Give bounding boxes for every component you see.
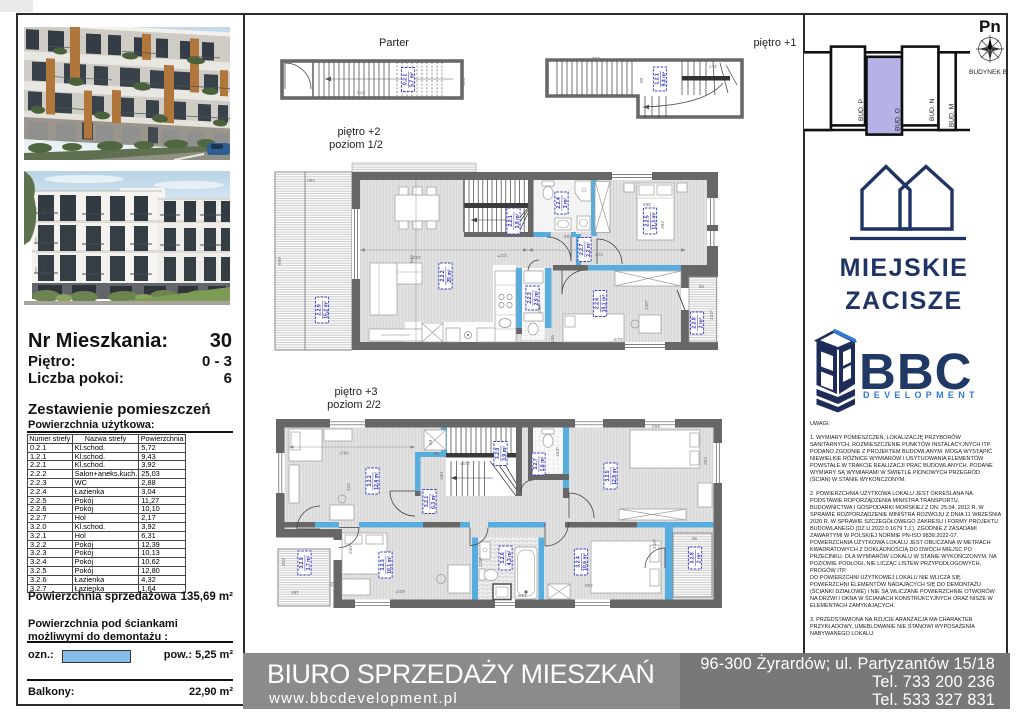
svg-text:6,3 m²: 6,3 m² xyxy=(431,494,437,509)
svg-text:228⁵: 228⁵ xyxy=(478,557,484,567)
svg-text:10,6 m²: 10,6 m² xyxy=(583,553,589,571)
svg-text:2.2.4: 2.2.4 xyxy=(556,197,562,208)
svg-text:2.2.7: 2.2.7 xyxy=(579,244,585,255)
svg-text:3 m²: 3 m² xyxy=(563,197,569,208)
svg-text:90: 90 xyxy=(698,283,704,289)
svg-text:3,9 m²: 3,9 m² xyxy=(502,446,508,461)
svg-text:129: 129 xyxy=(529,465,535,473)
svg-text:414⁵: 414⁵ xyxy=(613,336,623,342)
svg-text:10,1 m²: 10,1 m² xyxy=(387,556,393,574)
svg-text:piętro +1: piętro +1 xyxy=(753,37,796,49)
svg-text:2.2.2: 2.2.2 xyxy=(440,270,446,281)
svg-text:3.2.6: 3.2.6 xyxy=(500,552,506,563)
svg-text:2 m²: 2 m² xyxy=(699,317,705,328)
svg-text:BUD. M: BUD. M xyxy=(949,104,956,127)
svg-text:2,2 m²: 2,2 m² xyxy=(586,242,592,257)
svg-text:570: 570 xyxy=(357,89,365,95)
svg-text:3.2.2: 3.2.2 xyxy=(367,475,373,486)
svg-text:4,3 m²: 4,3 m² xyxy=(507,550,513,565)
svg-text:BUD. N: BUD. N xyxy=(929,98,936,121)
svg-text:250: 250 xyxy=(307,177,315,183)
svg-text:poziom 2/2: poziom 2/2 xyxy=(327,399,381,411)
svg-text:1,6 m²: 1,6 m² xyxy=(540,456,546,471)
svg-text:252: 252 xyxy=(281,558,287,566)
svg-text:2.2.9: 2.2.9 xyxy=(317,304,323,315)
svg-text:3,7 m²: 3,7 m² xyxy=(306,555,312,570)
svg-text:9,4 m²: 9,4 m² xyxy=(662,71,668,86)
svg-text:2.2.1: 2.2.1 xyxy=(508,215,514,226)
svg-text:2 m²: 2 m² xyxy=(697,552,703,563)
svg-text:12,8 m²: 12,8 m² xyxy=(612,467,618,485)
svg-text:215⁵: 215⁵ xyxy=(460,460,470,466)
svg-text:Parter: Parter xyxy=(379,37,409,49)
svg-text:BUDYNEK B: BUDYNEK B xyxy=(969,69,1008,76)
svg-text:3.2.8: 3.2.8 xyxy=(690,552,696,563)
svg-text:3,9 m²: 3,9 m² xyxy=(515,213,521,228)
svg-text:193⁵: 193⁵ xyxy=(517,592,527,598)
svg-text:436: 436 xyxy=(585,582,593,588)
svg-text:2.2.8: 2.2.8 xyxy=(692,317,698,328)
svg-text:240⁵: 240⁵ xyxy=(348,544,354,554)
svg-text:217⁵: 217⁵ xyxy=(497,252,507,258)
svg-text:332: 332 xyxy=(592,55,600,61)
svg-text:34: 34 xyxy=(329,581,335,587)
svg-text:3.2.1: 3.2.1 xyxy=(424,496,430,507)
svg-text:3.2.4: 3.2.4 xyxy=(576,556,582,567)
svg-text:BUD. O: BUD. O xyxy=(895,108,902,131)
svg-text:90: 90 xyxy=(691,535,697,541)
svg-text:150: 150 xyxy=(291,589,299,595)
svg-text:224⁵: 224⁵ xyxy=(709,310,715,320)
svg-text:240⁵: 240⁵ xyxy=(644,300,650,310)
svg-text:3.2.3: 3.2.3 xyxy=(380,559,386,570)
svg-text:240⁵: 240⁵ xyxy=(652,539,658,549)
svg-text:3.2.0: 3.2.0 xyxy=(495,448,501,459)
svg-text:600: 600 xyxy=(277,257,283,265)
svg-text:2.2.3: 2.2.3 xyxy=(527,292,533,303)
svg-text:90: 90 xyxy=(639,77,645,83)
svg-text:225: 225 xyxy=(713,561,719,569)
svg-text:piętro +3: piętro +3 xyxy=(334,386,377,398)
svg-text:piętro +2: piętro +2 xyxy=(337,126,380,138)
svg-text:15,2 m²: 15,2 m² xyxy=(324,301,330,319)
svg-text:195: 195 xyxy=(564,233,572,239)
svg-text:poziom 1/2: poziom 1/2 xyxy=(329,139,383,151)
svg-text:422⁵: 422⁵ xyxy=(395,588,405,594)
svg-text:0.2.1: 0.2.1 xyxy=(403,74,409,85)
svg-text:163⁵: 163⁵ xyxy=(555,447,561,457)
svg-text:3.2.9: 3.2.9 xyxy=(299,557,305,568)
svg-text:2.2.5: 2.2.5 xyxy=(645,215,651,226)
svg-text:452: 452 xyxy=(652,423,660,429)
svg-text:11,3 m²: 11,3 m² xyxy=(652,212,658,230)
svg-text:93: 93 xyxy=(428,439,434,445)
svg-text:317: 317 xyxy=(709,63,717,69)
svg-text:12,4 m²: 12,4 m² xyxy=(374,472,380,490)
svg-text:25 m²: 25 m² xyxy=(447,269,453,283)
svg-text:292: 292 xyxy=(703,457,709,465)
svg-text:5,7 m²: 5,7 m² xyxy=(410,72,416,87)
svg-text:543: 543 xyxy=(409,255,415,263)
svg-text:135: 135 xyxy=(550,335,556,343)
svg-text:2,9 m²: 2,9 m² xyxy=(534,290,540,305)
svg-text:217: 217 xyxy=(595,251,603,257)
svg-text:BUD. P: BUD. P xyxy=(858,98,865,121)
svg-text:2.2.6: 2.2.6 xyxy=(595,298,601,309)
svg-text:236: 236 xyxy=(537,305,543,313)
svg-text:160: 160 xyxy=(439,472,445,480)
svg-text:292: 292 xyxy=(660,221,666,229)
svg-text:392⁵: 392⁵ xyxy=(339,450,349,456)
svg-text:Pn: Pn xyxy=(979,17,1001,36)
svg-text:3.2.5: 3.2.5 xyxy=(605,470,611,481)
svg-text:210: 210 xyxy=(346,483,352,491)
svg-text:90: 90 xyxy=(433,450,439,456)
svg-text:10,1 m²: 10,1 m² xyxy=(602,294,608,312)
svg-text:1.2.1: 1.2.1 xyxy=(655,73,661,84)
svg-text:500: 500 xyxy=(461,78,467,86)
svg-text:382: 382 xyxy=(643,201,651,207)
